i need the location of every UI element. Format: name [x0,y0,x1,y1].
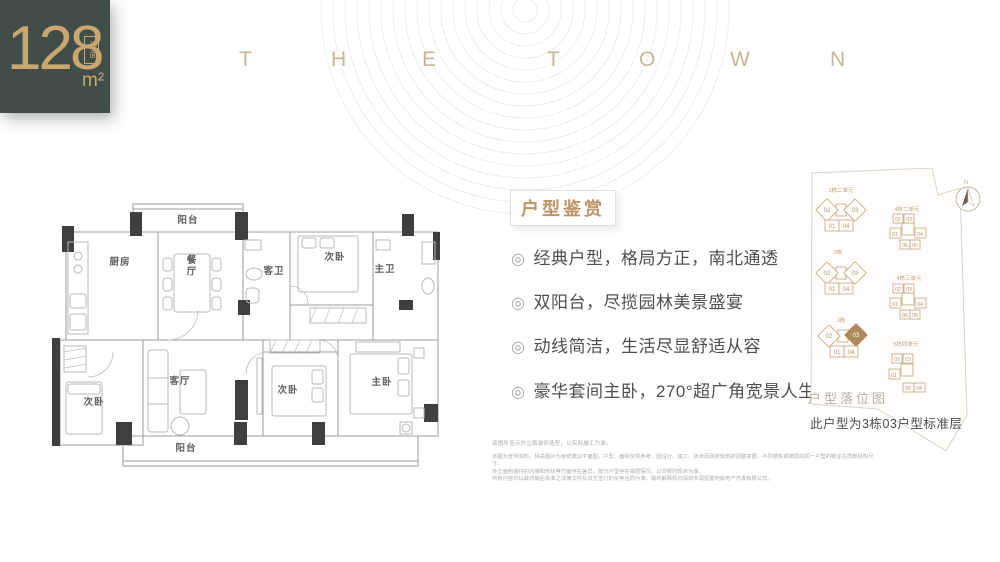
room-label-bedroom-mid: 次卧 [277,384,298,396]
highlight-text: 经典户型，格局方正，南北通透 [533,249,778,268]
svg-text:3栋: 3栋 [837,316,846,324]
svg-text:04: 04 [843,287,850,293]
svg-text:03: 03 [905,357,911,363]
brand-wordmark: T H E T O W N [0,48,1000,74]
site-plan-caption: 此户型为3栋03户型标准层 [810,413,962,432]
brand-letter: E [422,48,436,72]
svg-text:4栋二单元: 4栋二单元 [894,205,920,213]
room-label-dining: 餐厅 [185,254,198,278]
poster: 128 建面 m² T H E T O W N [0,0,1000,562]
svg-text:01: 01 [892,302,898,308]
bullet-icon: ◎ [511,251,525,268]
room-label-living: 客厅 [168,375,190,387]
svg-text:04: 04 [917,302,923,308]
svg-text:02: 02 [824,271,831,277]
svg-text:01: 01 [829,224,836,230]
svg-text:1栋二单元: 1栋二单元 [828,186,854,194]
brand-letter: N [830,48,845,72]
room-label-kitchen: 厨房 [109,256,130,268]
disclaimer-line: 该图所显示外立面装饰造型，以实际施工为准。 [492,439,792,447]
svg-text:01: 01 [892,232,898,238]
room-label-master-bedroom: 主卧 [371,376,392,388]
svg-text:4栋三单元: 4栋三单元 [896,274,922,282]
svg-text:N: N [964,180,968,186]
room-label-balcony-bottom: 阳台 [175,442,196,454]
furniture-master-bedroom [350,342,424,434]
svg-text:03: 03 [853,333,860,339]
brand-letter: O [639,48,655,72]
site-plan-title: 户型落位图 [808,388,888,407]
room-label-guest-bath: 客卫 [262,265,284,277]
highlight-text: 豪华套间主卧，270°超广角宽景人生 [533,382,815,401]
svg-text:2栋: 2栋 [834,248,843,256]
brand-letter: H [331,48,346,72]
room-label-bedroom-top: 次卧 [324,251,345,263]
concentric-rings-decoration [310,0,740,218]
svg-text:06: 06 [902,313,908,319]
floor-plan: 阳台 厨房 餐厅 客卫 次卧 主卫 次卧 客厅 次卧 主卧 阳台 [38,190,450,482]
svg-text:05: 05 [905,386,911,392]
svg-text:04: 04 [916,386,922,392]
room-label-balcony-top: 阳台 [177,214,198,226]
svg-text:5栋四单元: 5栋四单元 [893,340,919,348]
svg-text:01: 01 [834,350,841,356]
room-label-master-bath: 主卫 [374,263,395,275]
brand-letter: W [730,48,750,72]
svg-text:03: 03 [852,271,859,277]
section-title-huxing-jianshang: 户型鉴赏 [510,190,616,226]
highlight-text: 双阳台，尽揽园林美景盛宴 [533,293,743,312]
svg-text:01: 01 [891,373,897,379]
svg-text:04: 04 [848,350,855,356]
door-arcs [88,286,338,377]
svg-text:05: 05 [912,313,918,319]
disclaimer-paragraph: 本图为宣传资料，相关图片为装修建议平面图，户型、面积仅供参考，因设计、施工、技术… [492,454,877,484]
disclaimer-paragraph-line: 所有内容均以政府最后批准之法律文件及双方签订的买卖合同为准，最终解释权归深圳市润… [492,476,877,483]
furniture-bedroom-mid [270,340,326,416]
svg-text:03: 03 [906,217,912,223]
svg-text:04: 04 [843,224,850,230]
compass-icon: N [956,180,980,211]
brand-letter: T [547,48,560,72]
furniture-bedroom-top [298,236,366,323]
highlight-text: 动线简洁，生活尽显舒适从容 [533,337,761,356]
furniture-bedroom-left [64,346,102,434]
svg-text:06: 06 [902,243,908,249]
svg-text:02: 02 [895,217,901,223]
room-label-bedroom-left: 次卧 [83,396,104,408]
bullet-icon: ◎ [511,339,525,356]
svg-text:02: 02 [894,357,900,363]
floor-plan-walls [52,204,440,466]
svg-text:02: 02 [895,287,901,293]
svg-text:03: 03 [852,208,859,214]
brand-letter: T [239,48,252,72]
furniture-guest-bath [245,240,262,303]
disclaimer-paragraph-line: 本图为宣传资料，相关图片为装修建议平面图，户型、面积仅供参考，因设计、施工、技术… [492,454,877,469]
furniture-kitchen [68,242,88,334]
svg-text:03: 03 [906,287,912,293]
svg-text:04: 04 [917,232,923,238]
svg-text:02: 02 [826,334,833,340]
bullet-icon: ◎ [511,295,525,312]
svg-text:01: 01 [829,287,836,293]
svg-text:02: 02 [824,208,831,214]
svg-text:05: 05 [912,243,918,249]
bullet-icon: ◎ [511,384,525,401]
